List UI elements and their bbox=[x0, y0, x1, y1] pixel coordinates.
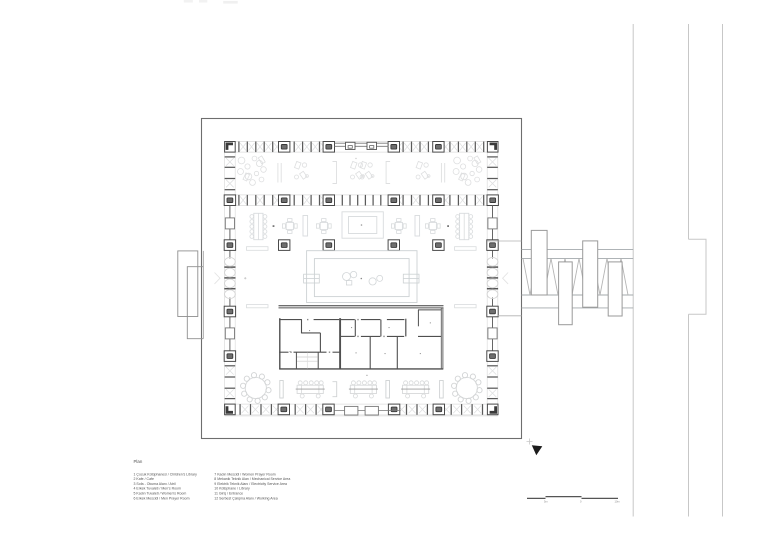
svg-text:2 Kafe / Cafe: 2 Kafe / Cafe bbox=[134, 477, 154, 481]
svg-text:6 Erkek Mescidi / Men Prayer R: 6 Erkek Mescidi / Men Prayer Room bbox=[134, 496, 190, 500]
svg-text:10 Kütüphane / Library: 10 Kütüphane / Library bbox=[214, 487, 250, 491]
svg-text:10m: 10m bbox=[615, 500, 620, 504]
svg-text:12 Serbest Çalışma Alanı / Wor: 12 Serbest Çalışma Alanı / Working Area bbox=[214, 496, 277, 500]
svg-text:7 Kadın Mescidi / Women Prayer: 7 Kadın Mescidi / Women Prayer Room bbox=[214, 472, 275, 476]
svg-text:4 Erkek Tuvaleti / Men’s Room: 4 Erkek Tuvaleti / Men’s Room bbox=[134, 487, 181, 491]
svg-text:11 Giriş / Entrance: 11 Giriş / Entrance bbox=[214, 492, 243, 496]
svg-text:9 Elektrik Teknik Alanı / Elec: 9 Elektrik Teknik Alanı / Electricity Se… bbox=[214, 482, 287, 486]
svg-text:3 Sofa - Okuma Alanı / Atril: 3 Sofa - Okuma Alanı / Atril bbox=[134, 482, 176, 486]
svg-text:5 Kadın Tuvaleti / Women’s Roo: 5 Kadın Tuvaleti / Women’s Room bbox=[134, 492, 187, 496]
svg-text:8 Mekanik Teknik Alan / Mechan: 8 Mekanik Teknik Alan / Mechanical Servi… bbox=[214, 477, 290, 481]
svg-text:1 Çocuk Kütüphanesi / Children: 1 Çocuk Kütüphanesi / Children’s Library bbox=[134, 472, 198, 476]
svg-text:5m: 5m bbox=[544, 500, 548, 504]
svg-text:Plan: Plan bbox=[134, 459, 143, 464]
